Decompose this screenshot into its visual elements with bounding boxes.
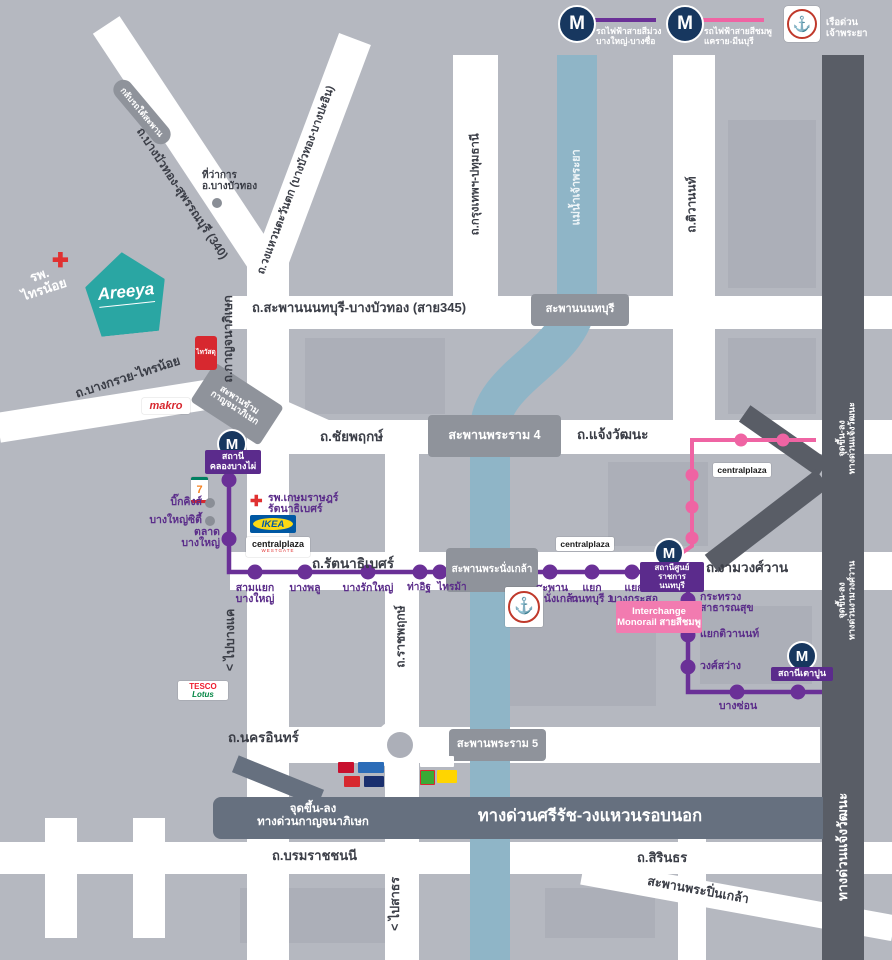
- station-wong-sawang: วงศ์สว่าง: [700, 661, 770, 672]
- bridge-rama5: สะพานพระราม 5: [449, 729, 546, 761]
- station-sai-ma: ไทรม้า: [430, 583, 474, 594]
- chao-phraya-boat-pier-logo: ⚓: [505, 587, 543, 627]
- station-label-line2: คลองบางไผ่: [208, 462, 258, 472]
- road-label-rattanathibet: ถ.รัตนาธิเบศร์: [312, 557, 394, 572]
- bridge-nonthaburi: สะพานนนทบุรี: [531, 294, 629, 326]
- retail-logo: [344, 776, 360, 787]
- legend-purple-line2: บางใหญ่-บางซื่อ: [596, 37, 666, 47]
- bangyai-city-label: บางใหญ่ซิตี้: [138, 515, 202, 526]
- central-plaza-logo: centralplaza: [713, 463, 771, 477]
- legend-purple-label: รถไฟฟ้าสายสีม่วง บางใหญ่-บางซื่อ: [596, 27, 666, 47]
- retail-logo: [338, 762, 354, 773]
- road-label-nakhon-in: ถ.นครอินทร์: [228, 731, 299, 746]
- station-label-line2: บางใหญ่: [160, 538, 220, 549]
- retail-logo: [358, 762, 384, 773]
- ikea-logo: IKEA: [250, 515, 296, 533]
- bridge-label: สะพานพระราม 5: [457, 739, 538, 751]
- road-label-chaiyapruek: ถ.ชัยพฤกษ์: [320, 430, 383, 445]
- central-label: centralplaza: [560, 540, 609, 549]
- district-office-line1: ที่ว่าการ: [202, 170, 257, 181]
- ramp-label-line2: ทางด่วนกาญจนาภิเษก: [248, 816, 378, 829]
- district-office-line2: อ.บางบัวทอง: [202, 181, 257, 192]
- district-office-label: ที่ว่าการ อ.บางบัวทอง: [202, 170, 257, 192]
- central-plaza-westgate-logo: centralplaza WESTGATE: [246, 537, 310, 557]
- bangyai-city-dot: [205, 516, 215, 526]
- seven-eleven-label: 7: [196, 485, 202, 496]
- bridge-rama4: สะพานพระราม 4: [428, 415, 561, 457]
- road-label-sai345: ถ.สะพานนนทบุรี-บางบัวทอง (สาย345): [252, 301, 466, 315]
- road-label-sirindhorn: ถ.สิรินธร: [637, 851, 687, 865]
- station-box-khlong-bang-phai: สถานี คลองบางไผ่: [205, 450, 261, 474]
- station-bang-rak-yai: บางรักใหญ่: [338, 583, 398, 594]
- station-label-line1: สถานีศูนย์ราชการ: [643, 564, 701, 582]
- legend-mrt-purple-icon: M: [558, 5, 596, 43]
- tesco-lotus-logo: TESCO Lotus: [178, 681, 228, 700]
- kasemrad-hospital-label: รพ.เกษมราษฎร์ รัตนาธิเบศร์: [268, 493, 364, 515]
- big-kings-label: บิ๊กคิงส์: [148, 497, 202, 508]
- road-label-ngamwongwan: ถ.งามวงศ์วาน: [706, 561, 788, 576]
- chaengwattana-ramp-label: จุดขึ้น-ลง ทางด่วนแจ้งวัฒนะ: [837, 388, 858, 488]
- river-label: แม่น้ำเจ้าพระยา: [571, 132, 584, 242]
- legend-purple-line: [588, 18, 656, 22]
- ramp-label-line1: จุดขึ้น-ลง: [837, 388, 847, 488]
- ramp-label-line1: จุดขึ้น-ลง: [248, 803, 378, 816]
- retail-logo: [420, 770, 435, 785]
- bridge-label: สะพานพระราม 4: [448, 429, 540, 442]
- direction-to-bangkhae: < ไปบางแค: [224, 595, 238, 685]
- station-talad-bang-yai: ตลาด บางใหญ่: [160, 527, 220, 549]
- bridge-label: สะพานพระนั่งเกล้า: [452, 565, 533, 576]
- station-box-civic-center: สถานีศูนย์ราชการ นนทบุรี: [640, 562, 704, 592]
- station-label-line2: นนทบุรี: [643, 582, 701, 591]
- anchor-icon: ⚓: [508, 591, 540, 623]
- westgate-label: WESTGATE: [262, 549, 295, 554]
- ngamwongwan-ramp-label: จุดขึ้น-ลง ทางด่วนงามวงศ์วาน: [837, 550, 858, 650]
- lotus-label: Lotus: [192, 691, 214, 699]
- anchor-icon: ⚓: [787, 9, 817, 39]
- station-label-line2: สาธารณสุข: [700, 603, 770, 614]
- direction-to-sathon: < ไปสาธร: [389, 864, 403, 944]
- makro-logo: makro: [142, 398, 190, 414]
- retail-logo: [420, 756, 454, 767]
- legend-boat-label: เรือด่วนเจ้าพระยา: [826, 18, 890, 40]
- interchange-monorail-box: Interchange Monorail สายสีชมพู: [616, 601, 702, 633]
- station-bang-phlu: บางพลู: [280, 583, 330, 594]
- station-label-line2: บางใหญ่: [225, 594, 285, 605]
- bridge-label: สะพานนนทบุรี: [546, 304, 615, 316]
- map-canvas: สะพานนนทบุรี สะพานพระราม 4 สะพานพระนั่งเ…: [0, 0, 892, 960]
- legend-pink-line2: แคราย-มีนบุรี: [704, 37, 774, 47]
- station-ministry-public-health: กระทรวง สาธารณสุข: [700, 592, 770, 614]
- road-label-krungthep-pathum: ถ.กรุงเทพฯ-ปทุมธานี: [470, 114, 483, 254]
- central-plaza-logo: centralplaza: [556, 537, 614, 551]
- station-yaek-tiwanon: แยกติวานนท์: [700, 629, 784, 640]
- hospital-cross-icon: ✚: [250, 492, 263, 510]
- road-label-ratchaphruek: ถ.ราชพฤกษ์: [394, 587, 407, 687]
- ikea-label: IKEA: [253, 518, 293, 530]
- retail-logo: [437, 770, 457, 783]
- chaengwattana-expressway-label: ทางด่วนแจ้งวัฒนะ: [835, 777, 851, 917]
- station-sam-yaek-bang-yai: สามแยก บางใหญ่: [225, 583, 285, 605]
- ramp-label-line2: ทางด่วนงามวงศ์วาน: [847, 550, 857, 650]
- legend-pink-line: [696, 18, 764, 22]
- big-kings-dot: [205, 498, 215, 508]
- legend-boat-icon: ⚓: [784, 6, 820, 42]
- central-label: centralplaza: [717, 466, 766, 475]
- interchange-label-line1: Interchange: [632, 606, 686, 617]
- pink-line-stations: [686, 434, 790, 545]
- sirat-expressway-label: ทางด่วนศรีรัช-วงแหวนรอบนอก: [440, 807, 740, 826]
- station-box-tao-poon: สถานีเตาปูน: [771, 667, 833, 681]
- areeya-label: Areeya: [97, 279, 156, 308]
- sirat-kanchana-ramp-label: จุดขึ้น-ลง ทางด่วนกาญจนาภิเษก: [248, 803, 378, 829]
- makro-label: makro: [149, 401, 182, 412]
- thaiwatsadu-logo: ไทวัสดุ: [195, 336, 217, 370]
- interchange-label-line2: Monorail สายสีชมพู: [617, 617, 701, 628]
- ramp-label-line1: จุดขึ้น-ลง: [837, 550, 847, 650]
- kasemrad-line2: รัตนาธิเบศร์: [268, 504, 364, 515]
- road-label-tiwanon: ถ.ติวานนท์: [685, 165, 698, 245]
- station-bang-son: บางซ่อน: [712, 701, 764, 712]
- ramp-label-line2: ทางด่วนแจ้งวัฒนะ: [847, 388, 857, 488]
- district-office-dot: [212, 198, 222, 208]
- road-label-kanchanaphisek: ถ.กาญจนาภิเษก: [222, 284, 236, 394]
- legend-pink-label: รถไฟฟ้าสายสีชมพู แคราย-มีนบุรี: [704, 27, 774, 47]
- retail-logo: [364, 776, 384, 787]
- road-label-borommaratchachonnani: ถ.บรมราชชนนี: [272, 849, 357, 863]
- legend-mrt-pink-icon: M: [666, 5, 704, 43]
- road-label-chaengwattana: ถ.แจ้งวัฒนะ: [577, 428, 648, 443]
